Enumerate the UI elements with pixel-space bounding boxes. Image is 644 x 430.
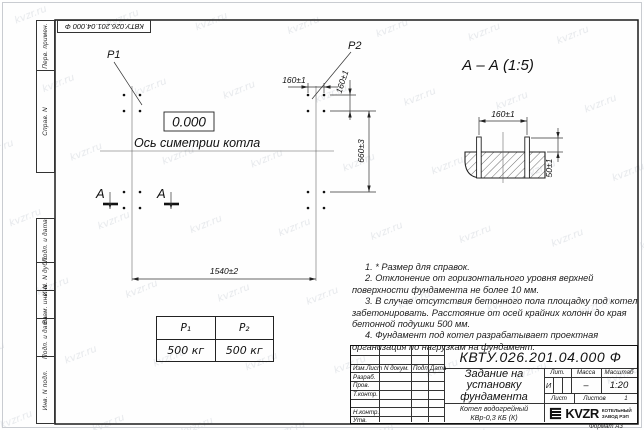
symmetry-axis-label: Ось симетрии котла xyxy=(134,136,260,150)
note-1: 1. * Размер для справок. xyxy=(352,262,642,273)
logo-subtitle: КОТЕЛЬНЫЙ ЗАВОД РЭП xyxy=(602,408,632,418)
load-table-p2-value: 500 кг xyxy=(216,340,274,362)
row-utv: Утв. xyxy=(353,417,367,424)
lit-value: И xyxy=(544,377,553,393)
dim-bolt-h-label: 160±1 xyxy=(282,75,306,85)
margin-strip-bottom: Подп. и дата Инв. N дубл. Взам. инв. N П… xyxy=(36,218,55,424)
row-prov: Пров. xyxy=(353,382,369,389)
level-mark: 0.000 xyxy=(172,115,206,130)
sheets-cell: Листов 1 xyxy=(574,393,637,403)
company-logo: KVZR КОТЕЛЬНЫЙ ЗАВОД РЭП xyxy=(544,404,637,423)
dim-660-label: 660±3 xyxy=(356,139,366,163)
kvzr-logo-icon xyxy=(549,407,562,420)
mass-value: – xyxy=(571,377,601,393)
lit-header: Лит. xyxy=(544,368,571,377)
margin-cell: Взам. инв. N xyxy=(37,291,54,319)
sheet-label: Лист xyxy=(544,393,574,403)
col-izm-list: Изм.Лист xyxy=(353,365,382,372)
margin-label: Справ. N xyxy=(42,107,49,136)
designation: КВТУ.026.201.04.000 Ф xyxy=(444,346,637,368)
margin-strip-top: Перв. примен. Справ. N xyxy=(36,20,55,173)
load-table-p1-value: 500 кг xyxy=(157,340,216,362)
section-dim-50-label: 50±1 xyxy=(544,158,554,177)
load-table: P₁ P₂ 500 кг 500 кг xyxy=(156,316,274,362)
top-designation-text: КВТУ.026.201.04.000 Ф xyxy=(65,22,144,31)
load-table-header-row: P₁ P₂ xyxy=(157,317,273,340)
document-name-line: фундамента xyxy=(460,392,528,404)
title-block: Изм.Лист N докум. Подп. Дата Разраб. Про… xyxy=(350,345,638,424)
margin-cell: Инв. N подл. xyxy=(37,357,54,423)
document-name: Задание на установку фундамента xyxy=(444,368,544,404)
section-bolt-left xyxy=(477,137,482,178)
col-podp: Подп. xyxy=(413,365,429,372)
load-table-p1-header: P₁ xyxy=(157,317,216,339)
logo-subtitle-line: ЗАВОД РЭП xyxy=(602,414,632,419)
margin-label: Инв. N подл. xyxy=(42,370,49,410)
section-title: А – А (1:5) xyxy=(461,57,534,74)
notes-block: 1. * Размер для справок. 2. Отклонение о… xyxy=(352,262,642,353)
scale-header: Масштаб xyxy=(601,368,637,377)
scale-value: 1:20 xyxy=(601,377,637,393)
margin-cell: Подп. и дата xyxy=(37,319,54,357)
sheets-label: Листов xyxy=(583,395,606,402)
section-letter-left: А xyxy=(95,186,105,201)
mass-header: Масса xyxy=(571,368,601,377)
section-bolt-right xyxy=(525,137,530,178)
note-2: 2. Отклонение от горизонтального уровня … xyxy=(352,273,642,296)
margin-cell: Перв. примен. xyxy=(37,21,54,71)
dim-1540-label: 1540±2 xyxy=(210,266,239,276)
note-3: 3. В случае отсутствия бетонного пола пл… xyxy=(352,296,642,330)
col-doc-num: N докум. xyxy=(384,365,409,372)
load-table-value-row: 500 кг 500 кг xyxy=(157,340,273,362)
margin-label: Подп. и дата xyxy=(42,316,49,359)
load-p1-label: P1 xyxy=(107,49,120,61)
product-name: Котел водогрейный КВр-0,3 КБ (К) xyxy=(444,404,544,423)
row-tkontr: Т.контр. xyxy=(353,391,378,398)
section-dim-160-label: 160±1 xyxy=(491,109,515,119)
row-razrab: Разраб. xyxy=(353,374,375,381)
logo-name: KVZR xyxy=(565,406,598,421)
sheets-value: 1 xyxy=(624,395,627,402)
margin-label: Перв. примен. xyxy=(42,23,49,69)
row-nkontr: Н.контр. xyxy=(353,409,379,416)
load-table-p2-header: P₂ xyxy=(216,317,274,339)
product-line: КВр-0,3 КБ (К) xyxy=(470,414,517,423)
margin-cell: Справ. N xyxy=(37,71,54,172)
top-designation-stamp: КВТУ.026.201.04.000 Ф xyxy=(57,20,151,33)
load-p2-label: P2 xyxy=(348,40,361,52)
drawing-sheet: kvzr.ru kvzr.ru xyxy=(0,0,644,430)
section-letter-right: А xyxy=(156,186,166,201)
format-label: Формат А3 xyxy=(589,423,623,430)
